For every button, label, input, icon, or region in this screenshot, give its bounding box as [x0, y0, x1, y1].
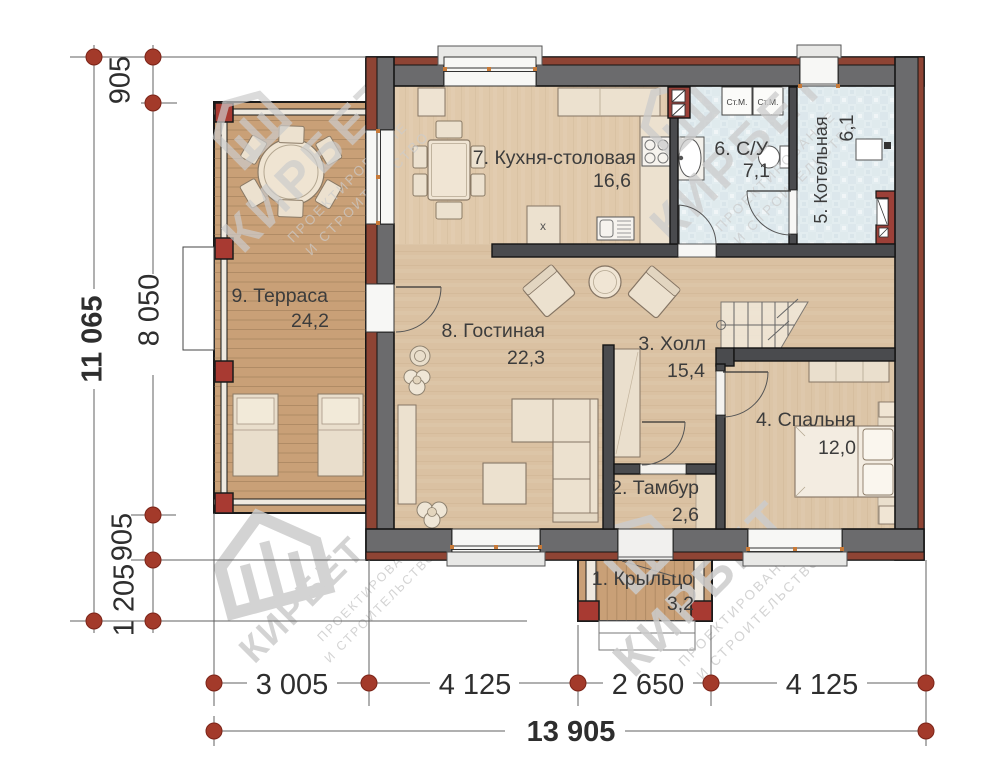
svg-text:6. С/У: 6. С/У [714, 138, 768, 160]
svg-text:7. Кухня-столовая: 7. Кухня-столовая [473, 147, 636, 169]
svg-text:905: 905 [107, 513, 139, 561]
svg-text:4 125: 4 125 [786, 669, 859, 701]
svg-text:22,3: 22,3 [507, 347, 545, 369]
svg-text:11 065: 11 065 [77, 295, 109, 382]
svg-text:5. Котельная: 5. Котельная [811, 116, 831, 223]
svg-text:8. Гостиная: 8. Гостиная [441, 320, 545, 342]
svg-text:4. Спальня: 4. Спальня [756, 409, 856, 431]
svg-text:7,1: 7,1 [743, 160, 770, 182]
svg-text:2. Тамбур: 2. Тамбур [611, 477, 699, 499]
svg-text:6,1: 6,1 [836, 114, 858, 141]
svg-text:13 905: 13 905 [527, 716, 616, 748]
svg-text:x: x [540, 219, 546, 233]
svg-text:3,2: 3,2 [667, 593, 694, 615]
svg-text:2,6: 2,6 [672, 504, 699, 526]
svg-text:8 050: 8 050 [134, 274, 166, 347]
svg-text:12,0: 12,0 [818, 437, 856, 459]
svg-text:3 005: 3 005 [256, 669, 329, 701]
svg-text:1 205: 1 205 [109, 564, 141, 637]
svg-text:2 650: 2 650 [612, 669, 685, 701]
svg-text:1. Крыльцо: 1. Крыльцо [592, 568, 693, 590]
svg-text:16,6: 16,6 [593, 170, 631, 192]
svg-text:Ст.М.: Ст.М. [727, 97, 748, 107]
svg-text:3. Холл: 3. Холл [638, 333, 706, 355]
svg-text:9. Терраса: 9. Терраса [232, 285, 329, 307]
svg-text:4 125: 4 125 [439, 669, 512, 701]
svg-text:905: 905 [105, 56, 137, 104]
svg-text:24,2: 24,2 [291, 310, 329, 332]
svg-text:15,4: 15,4 [667, 360, 705, 382]
